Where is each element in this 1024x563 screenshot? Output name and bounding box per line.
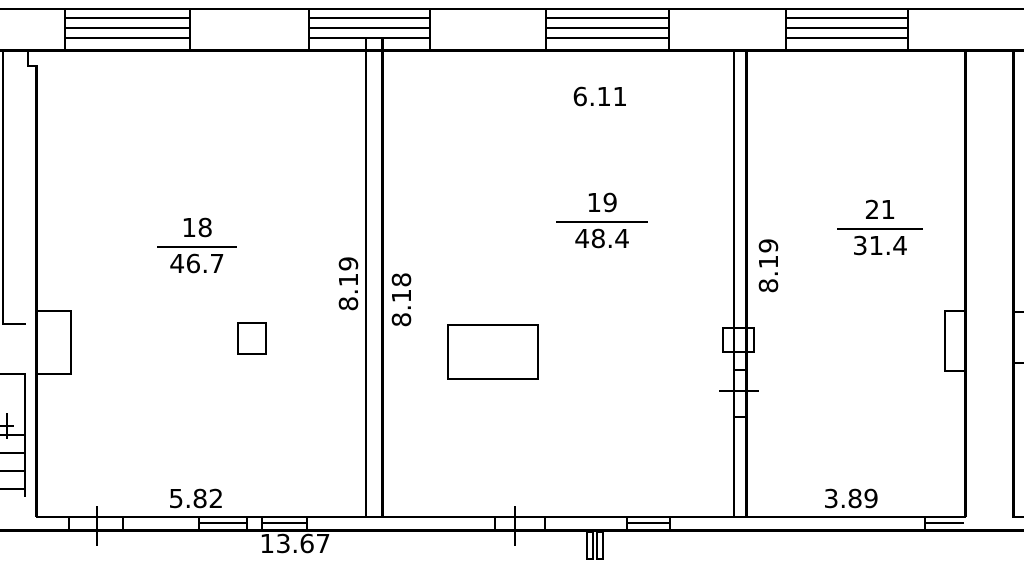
bottom-inner-wall-line <box>1012 516 1024 518</box>
window-jamb <box>122 516 124 532</box>
window-jamb <box>189 8 191 52</box>
door-jamb-line <box>733 369 748 371</box>
dimension-tick <box>96 506 98 546</box>
window-jamb <box>545 8 547 52</box>
bottom-inner-wall-line <box>36 516 966 518</box>
window-pane-line <box>261 522 306 524</box>
window-jamb <box>626 516 628 532</box>
window-jamb <box>429 8 431 52</box>
window-jamb <box>785 8 787 52</box>
dimension-label-13-67: 13.67 <box>259 531 331 559</box>
room18-left-wall <box>35 65 38 517</box>
dimension-label-8-19b: 8.19 <box>756 238 784 294</box>
wall-18-19-left-line <box>365 38 367 517</box>
window-pane-line <box>66 27 189 29</box>
dimension-label-3-89: 3.89 <box>823 486 879 514</box>
window-jamb <box>544 516 546 532</box>
left-outer-wall-line <box>2 51 4 325</box>
stair-step-line <box>0 470 26 472</box>
edge-tick <box>1015 362 1024 364</box>
entrance-step-left <box>586 531 594 560</box>
room-19-number: 19 <box>556 189 648 223</box>
stair-stringer-line <box>24 375 26 497</box>
room-21-number: 21 <box>837 196 923 230</box>
window-jamb <box>924 516 926 532</box>
door-jamb-line <box>733 416 748 418</box>
radiator-room18 <box>36 310 72 375</box>
room-19-area: 48.4 <box>556 223 648 256</box>
stair-landing-line <box>0 373 26 375</box>
room21-right-wall <box>964 51 967 517</box>
room-18-label: 18 46.7 <box>157 214 237 281</box>
window-pane-line <box>547 17 668 19</box>
edge-tick <box>1015 311 1024 313</box>
floor-plan-canvas: 18 46.7 19 48.4 21 31.4 6.11 8.19 8.18 8… <box>0 0 1024 563</box>
wall-18-19-right-line <box>381 38 384 517</box>
window-jamb <box>198 516 200 532</box>
window-jamb <box>246 516 248 532</box>
window-pane-line <box>547 37 668 39</box>
wall-19-21-right-line <box>745 51 748 517</box>
dimension-label-6-11: 6.11 <box>572 84 628 112</box>
top-outer-wall-line <box>0 8 1024 10</box>
window-pane-line <box>787 37 907 39</box>
shaft-right-wall <box>1012 51 1015 517</box>
dimension-label-5-82: 5.82 <box>168 486 224 514</box>
window-pane-line <box>198 522 246 524</box>
window-jamb <box>669 516 671 532</box>
window-pane-line <box>310 37 429 39</box>
wall-19-21-left-line <box>733 51 735 517</box>
window-pane-line <box>626 522 669 524</box>
window-pane-line <box>310 17 429 19</box>
dimension-label-8-18: 8.18 <box>389 272 417 328</box>
room-21-area: 31.4 <box>837 230 923 263</box>
window-pane-line <box>787 27 907 29</box>
dimension-tick <box>514 506 516 546</box>
window-jamb <box>668 8 670 52</box>
window-pane-line <box>924 522 964 524</box>
radiator-room21 <box>944 310 966 372</box>
window-pane-line <box>787 17 907 19</box>
dimension-tick <box>719 390 759 392</box>
stair-landing-line <box>2 323 26 325</box>
window-jamb <box>308 8 310 52</box>
room-19-label: 19 48.4 <box>556 189 648 256</box>
room-21-label: 21 31.4 <box>837 196 923 263</box>
room-18-number: 18 <box>157 214 237 248</box>
dimension-label-8-19a: 8.19 <box>336 256 364 312</box>
window-jamb <box>68 516 70 532</box>
stair-step-line <box>0 452 26 454</box>
window-pane-line <box>547 27 668 29</box>
top-inner-wall-line <box>0 49 1024 52</box>
bottom-outer-wall-line <box>0 529 1024 532</box>
window-jamb <box>907 8 909 52</box>
room-18-area: 46.7 <box>157 248 237 281</box>
entrance-step-right <box>596 531 604 560</box>
table-room19 <box>447 324 539 380</box>
window-pane-line <box>310 27 429 29</box>
stair-step-line <box>0 488 26 490</box>
fixture-room18 <box>237 322 267 355</box>
window-pane-line <box>66 37 189 39</box>
window-jamb <box>494 516 496 532</box>
stair-step-line <box>0 434 26 436</box>
window-pane-line <box>66 17 189 19</box>
wall-vent-19-21 <box>722 327 755 353</box>
window-jamb <box>64 8 66 52</box>
